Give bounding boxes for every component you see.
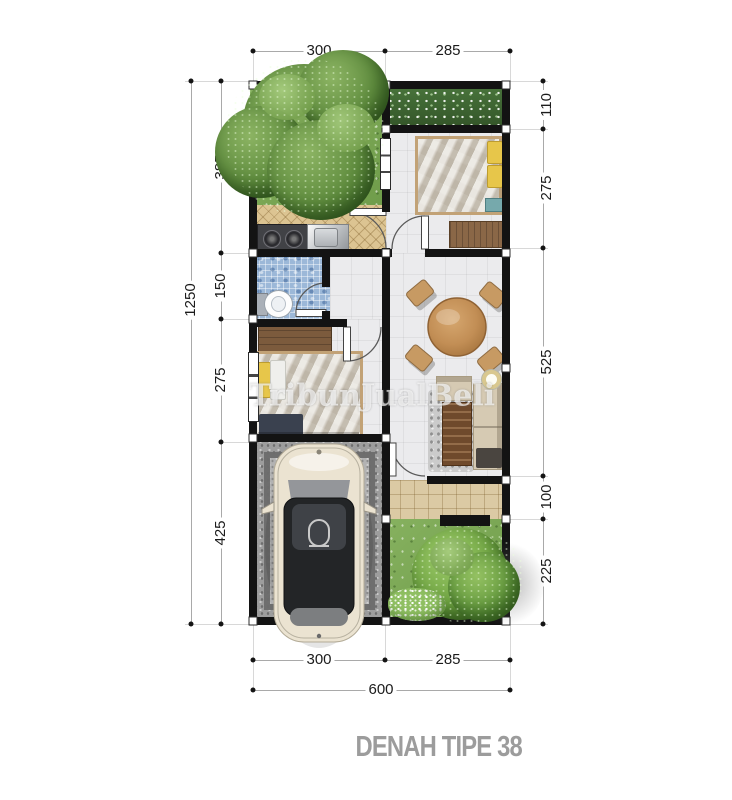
flower-bush	[388, 588, 446, 621]
dining-table	[428, 298, 486, 356]
column-marker	[382, 515, 391, 524]
bedroom1-bench	[449, 221, 508, 248]
column-marker	[382, 434, 391, 443]
dining-set	[398, 268, 516, 386]
wall	[382, 81, 510, 89]
dim-tick	[219, 622, 224, 627]
ext-line	[510, 51, 511, 81]
column-marker	[502, 81, 511, 90]
dim-tick	[541, 517, 546, 522]
wall	[382, 125, 510, 133]
sofa-ottoman	[476, 448, 502, 468]
column-marker	[502, 364, 511, 373]
dim-tick	[508, 49, 513, 54]
dim-left-150: 150	[213, 270, 229, 301]
column-marker	[249, 315, 258, 324]
dim-tick	[189, 622, 194, 627]
sink-bowl	[314, 228, 338, 247]
column-marker	[502, 125, 511, 134]
dim-line-bottom1	[253, 660, 510, 661]
toilet-seat	[271, 296, 286, 312]
wall	[322, 253, 330, 287]
dim-tick	[219, 440, 224, 445]
stove-burner	[263, 230, 281, 248]
dim-bottom-total: 600	[365, 682, 396, 698]
back-hedge	[386, 89, 506, 125]
column-marker	[249, 617, 258, 626]
dim-right-100: 100	[539, 481, 555, 512]
column-marker	[502, 249, 511, 258]
column-marker	[249, 434, 258, 443]
dim-left-275: 275	[213, 364, 229, 395]
page-title: DENAH TIPE 38	[356, 731, 522, 764]
dim-tick	[541, 622, 546, 627]
floor-plan-canvas: 300 285 110 275 525 100 225 385 150 275 …	[0, 0, 732, 800]
column-marker	[382, 249, 391, 258]
dim-tick	[541, 474, 546, 479]
dim-bottom-left: 300	[303, 652, 334, 668]
dim-top-right: 285	[432, 43, 463, 59]
car	[258, 440, 380, 650]
stove-burner	[285, 230, 303, 248]
tree-back-garden	[215, 48, 395, 226]
wall	[249, 319, 347, 327]
dim-right-525: 525	[539, 346, 555, 377]
dim-tick	[541, 246, 546, 251]
dim-tick	[508, 688, 513, 693]
dim-tick	[219, 251, 224, 256]
wall	[249, 249, 392, 257]
dim-tick	[251, 688, 256, 693]
wall	[427, 476, 510, 484]
dim-tick	[383, 658, 388, 663]
column-marker	[382, 617, 391, 626]
dim-tick	[189, 79, 194, 84]
dim-tick	[508, 658, 513, 663]
wall	[322, 311, 330, 319]
dim-tick	[541, 127, 546, 132]
wall	[425, 249, 510, 257]
dim-tick	[219, 317, 224, 322]
column-marker	[249, 249, 258, 258]
pillow	[487, 141, 503, 164]
hall-floor	[330, 253, 386, 319]
ext-line	[385, 625, 386, 660]
dim-bottom-right: 285	[432, 652, 463, 668]
car-rear-window	[290, 608, 348, 626]
dim-left-1250: 1250	[183, 280, 199, 319]
dim-left-425: 425	[213, 517, 229, 548]
watermark: TribunJualBeli	[249, 379, 495, 414]
dim-right-275: 275	[539, 172, 555, 203]
pillow	[487, 165, 503, 188]
terrace-floor	[386, 480, 506, 519]
column-marker	[502, 476, 511, 485]
tree-texture	[225, 58, 385, 216]
dim-right-110: 110	[539, 90, 555, 120]
dim-tick	[251, 658, 256, 663]
dim-line-left-total	[191, 81, 192, 624]
dim-tick	[541, 79, 546, 84]
